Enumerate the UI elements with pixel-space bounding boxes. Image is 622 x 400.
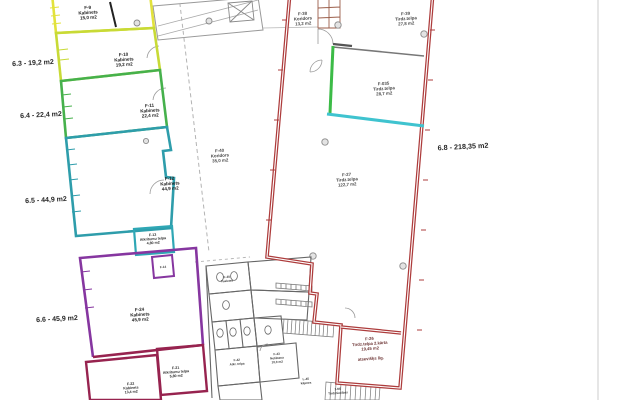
floor-plan-drawing: 6.3 - 19,2 m2 6.4 - 22,4 m2 6.5 - 44,9 m… (0, 0, 622, 400)
room-f12-label: F-12 Kabinets 44,9 m2 (160, 175, 181, 191)
room-f39-label: F-39 Tirdz.telpa 27,8 m2 (394, 10, 417, 27)
dim-label-6-6: 6.6 - 45,9 m2 (36, 315, 78, 324)
room-f22-outline (86, 355, 161, 400)
room-f22-label: F-22 Kabinets 13,4 m2 (123, 381, 139, 394)
wall-mark (110, 2, 116, 27)
window-ticks (50, 7, 94, 308)
svg-text:13,2 m2: 13,2 m2 (295, 20, 312, 26)
dim-label-6-5: 6.5 - 44,9 m2 (25, 196, 67, 205)
room-f11-label: F-11 Kabinets 22,4 m2 (140, 102, 161, 118)
room-f14-label: F-14 (160, 265, 167, 269)
accent-green-wall (330, 46, 333, 113)
room-f10-outline (56, 28, 160, 81)
corridor-dashed-line (179, 0, 209, 252)
room-f26-note: atsevišķs līg. (358, 355, 384, 362)
svg-text:19,45 m2: 19,45 m2 (361, 345, 380, 351)
door-arc (318, 29, 333, 44)
shelving (276, 283, 312, 307)
svg-text:15,0 m2: 15,0 m2 (80, 14, 98, 20)
room-f40-label: F-40 Koridors 35,0 m2 (210, 147, 230, 163)
room-f9-label: F-9 Kabinets 15,0 m2 (78, 4, 99, 20)
svg-text:28,7 m2: 28,7 m2 (376, 90, 393, 96)
svg-text:4,80 m2: 4,80 m2 (146, 241, 159, 246)
svg-text:kāpnes: kāpnes (301, 381, 312, 386)
floor-plan-page: 6.3 - 19,2 m2 6.4 - 22,4 m2 6.5 - 44,9 m… (0, 0, 622, 400)
dim-label-6-8: 6.8 - 218,35 m2 (437, 141, 488, 153)
svg-text:22,4 m2: 22,4 m2 (142, 112, 160, 118)
svg-text:27,8 m2: 27,8 m2 (398, 20, 415, 26)
room-f26-label: F-26 Tirdz.telpa 2.kārta 19,45 m2 atsevi… (352, 335, 390, 362)
svg-text:F-14: F-14 (160, 265, 167, 269)
room-l45-label: L-45 kāpnes (300, 377, 311, 386)
room-f42-label: F-42 Atkr. telpa (229, 357, 245, 366)
door-arc (310, 60, 322, 72)
room-f21-label: F-21 Atkritumu telpa 5,80 m2 (162, 365, 190, 379)
room-f27-label: F-27 Tirdz.telpa 122,7 m2 (335, 171, 358, 188)
svg-text:10,0 m2: 10,0 m2 (271, 360, 283, 365)
svg-text:Tualetes: Tualetes (221, 279, 234, 284)
dim-label-6-4: 6.4 - 22,4 m2 (20, 111, 62, 120)
room-f38-label: F-38 Koridors 13,2 m2 (293, 10, 313, 26)
room-f24-outline (80, 248, 203, 357)
dim-label-6-3: 6.3 - 19,2 m2 (12, 59, 54, 68)
structural-columns (134, 18, 427, 269)
svg-text:45,9 m2: 45,9 m2 (132, 316, 150, 322)
svg-text:122,7 m2: 122,7 m2 (338, 181, 357, 187)
door-arc (345, 308, 355, 318)
svg-text:44,9 m2: 44,9 m2 (162, 185, 180, 191)
accent-cyan-wall (327, 114, 424, 126)
svg-text:5,80 m2: 5,80 m2 (169, 374, 182, 379)
room-f43-label: F-43 Noliktava 10,0 m2 (270, 352, 285, 365)
room-f10-label: F-10 Kabinets 19,2 m2 (114, 51, 135, 67)
room-f13-label: F-13 Atkritumu telpa 4,80 m2 (139, 232, 167, 246)
svg-text:19,2 m2: 19,2 m2 (116, 61, 134, 67)
room-f035-label: F-035 Tirdz.telpa 28,7 m2 (372, 80, 395, 97)
svg-text:Atkr. telpa: Atkr. telpa (229, 361, 244, 366)
svg-text:35,0 m2: 35,0 m2 (212, 157, 229, 163)
room-labels: F-9 Kabinets 15,0 m2 F-10 Kabinets 19,2 … (78, 4, 418, 395)
svg-text:13,4 m2: 13,4 m2 (124, 390, 137, 395)
room-f24-label: F-24 Kabinets 45,9 m2 (130, 306, 151, 322)
